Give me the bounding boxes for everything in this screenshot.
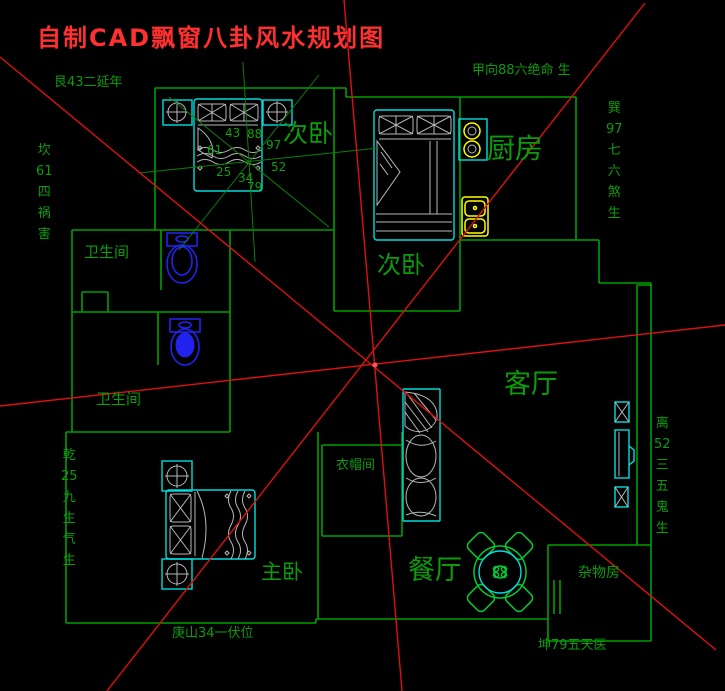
bagua-unit: 五 — [656, 480, 669, 493]
room-label-dining-room: 餐厅 — [408, 557, 462, 584]
cad-floorplan-canvas: 自制CAD飘窗八卦风水规划图 艮43二延年 甲向88六绝命 生 庚山34一伏位 … — [0, 0, 725, 691]
bagua-unit: 97 — [606, 123, 623, 136]
stove-icon — [459, 119, 487, 160]
bagua-unit: 巽 — [608, 102, 621, 115]
room-label-kitchen: 厨房 — [487, 135, 543, 163]
bagua-unit: 九 — [63, 491, 76, 504]
room-label-storage-room: 杂物房 — [578, 566, 620, 580]
bagua-label-gen43: 艮43二延年 — [54, 76, 123, 89]
room-label-cloakroom: 衣帽间 — [336, 459, 375, 472]
dining-table-icon — [465, 530, 534, 613]
room-label-bathroom-upper: 卫生间 — [84, 245, 129, 260]
sofa-icon — [403, 389, 440, 521]
bagua-label-jiaxiang88: 甲向88六绝命 生 — [472, 64, 571, 77]
tv-cabinet-icon — [615, 402, 634, 507]
toilet-upper-icon — [167, 233, 197, 283]
bagua-number-61: 61 — [207, 144, 222, 156]
bagua-unit: 鬼 — [656, 501, 669, 514]
bagua-number-88: 88 — [247, 128, 262, 140]
kitchen-sink-icon — [462, 197, 488, 236]
room-label-master-bedroom: 主卧 — [261, 562, 303, 583]
room-label-bedroom-mid: 次卧 — [377, 253, 425, 277]
bagua-unit: 祸 — [38, 207, 51, 220]
bagua-unit: 气 — [63, 533, 76, 546]
bagua-unit: 煞 — [608, 186, 621, 199]
bagua-number-43: 43 — [225, 127, 240, 139]
bagua-unit: 生 — [608, 207, 621, 220]
bagua-unit: 生 — [63, 554, 76, 567]
toilet-lower-icon — [170, 319, 200, 365]
bagua-unit: 乾 — [63, 449, 76, 462]
bagua-unit: 25 — [61, 470, 78, 483]
bagua-label-kun79: 坤79五天医 — [538, 639, 607, 652]
bagua-unit: 六 — [608, 165, 621, 178]
bagua-label-gengshan34: 庚山34一伏位 — [172, 627, 254, 640]
bagua-unit: 害 — [38, 228, 51, 241]
bagua-label-qian25: 乾 25 九 生 气 生 — [61, 449, 78, 567]
master-bed-icon — [162, 461, 255, 589]
bagua-unit: 61 — [36, 165, 53, 178]
bagua-unit: 生 — [63, 512, 76, 525]
bagua-unit: 生 — [656, 522, 669, 535]
room-label-bathroom-lower: 卫生间 — [96, 392, 141, 407]
bagua-unit: 离 — [656, 417, 669, 430]
bagua-unit: 坎 — [38, 144, 51, 157]
bagua-label-kan61: 坎 61 四 祸 害 — [36, 144, 53, 241]
bagua-number-52: 52 — [271, 161, 286, 173]
bagua-unit: 52 — [654, 438, 671, 451]
bagua-number-79: 79 — [247, 181, 262, 193]
bagua-number-25: 25 — [216, 166, 231, 178]
bagua-center-point — [373, 363, 378, 368]
bagua-label-li52: 离 52 三 五 鬼 生 — [654, 417, 671, 535]
room-label-living-room: 客厅 — [504, 371, 558, 398]
bedroom-mid-bed-icon — [374, 110, 454, 240]
page-title: 自制CAD飘窗八卦风水规划图 — [37, 26, 385, 50]
bagua-unit: 七 — [608, 144, 621, 157]
bagua-label-xun97: 巽 97 七 六 煞 生 — [606, 102, 623, 220]
room-label-bedroom-top: 次卧 — [283, 121, 333, 146]
bagua-number-97: 97 — [266, 139, 281, 151]
bagua-unit: 四 — [38, 186, 51, 199]
green-bagua-rays — [139, 62, 379, 262]
bagua-unit: 三 — [656, 459, 669, 472]
